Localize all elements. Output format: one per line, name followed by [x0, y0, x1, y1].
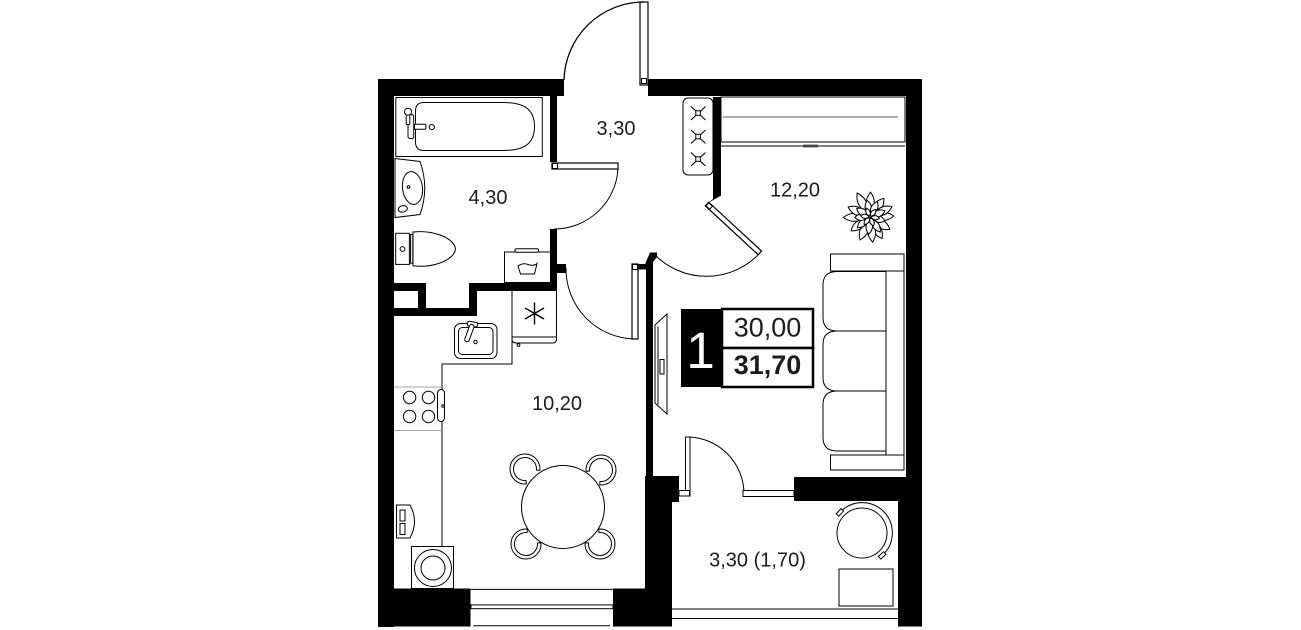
svg-text:30,00: 30,00 [734, 313, 802, 343]
svg-text:3,30: 3,30 [597, 118, 636, 140]
svg-text:1: 1 [686, 322, 714, 379]
svg-text:3,30 (1,70): 3,30 (1,70) [709, 550, 806, 572]
svg-text:31,70: 31,70 [734, 350, 802, 380]
svg-text:10,20: 10,20 [532, 393, 582, 415]
svg-text:12,20: 12,20 [770, 180, 820, 202]
svg-text:4,30: 4,30 [469, 187, 508, 209]
